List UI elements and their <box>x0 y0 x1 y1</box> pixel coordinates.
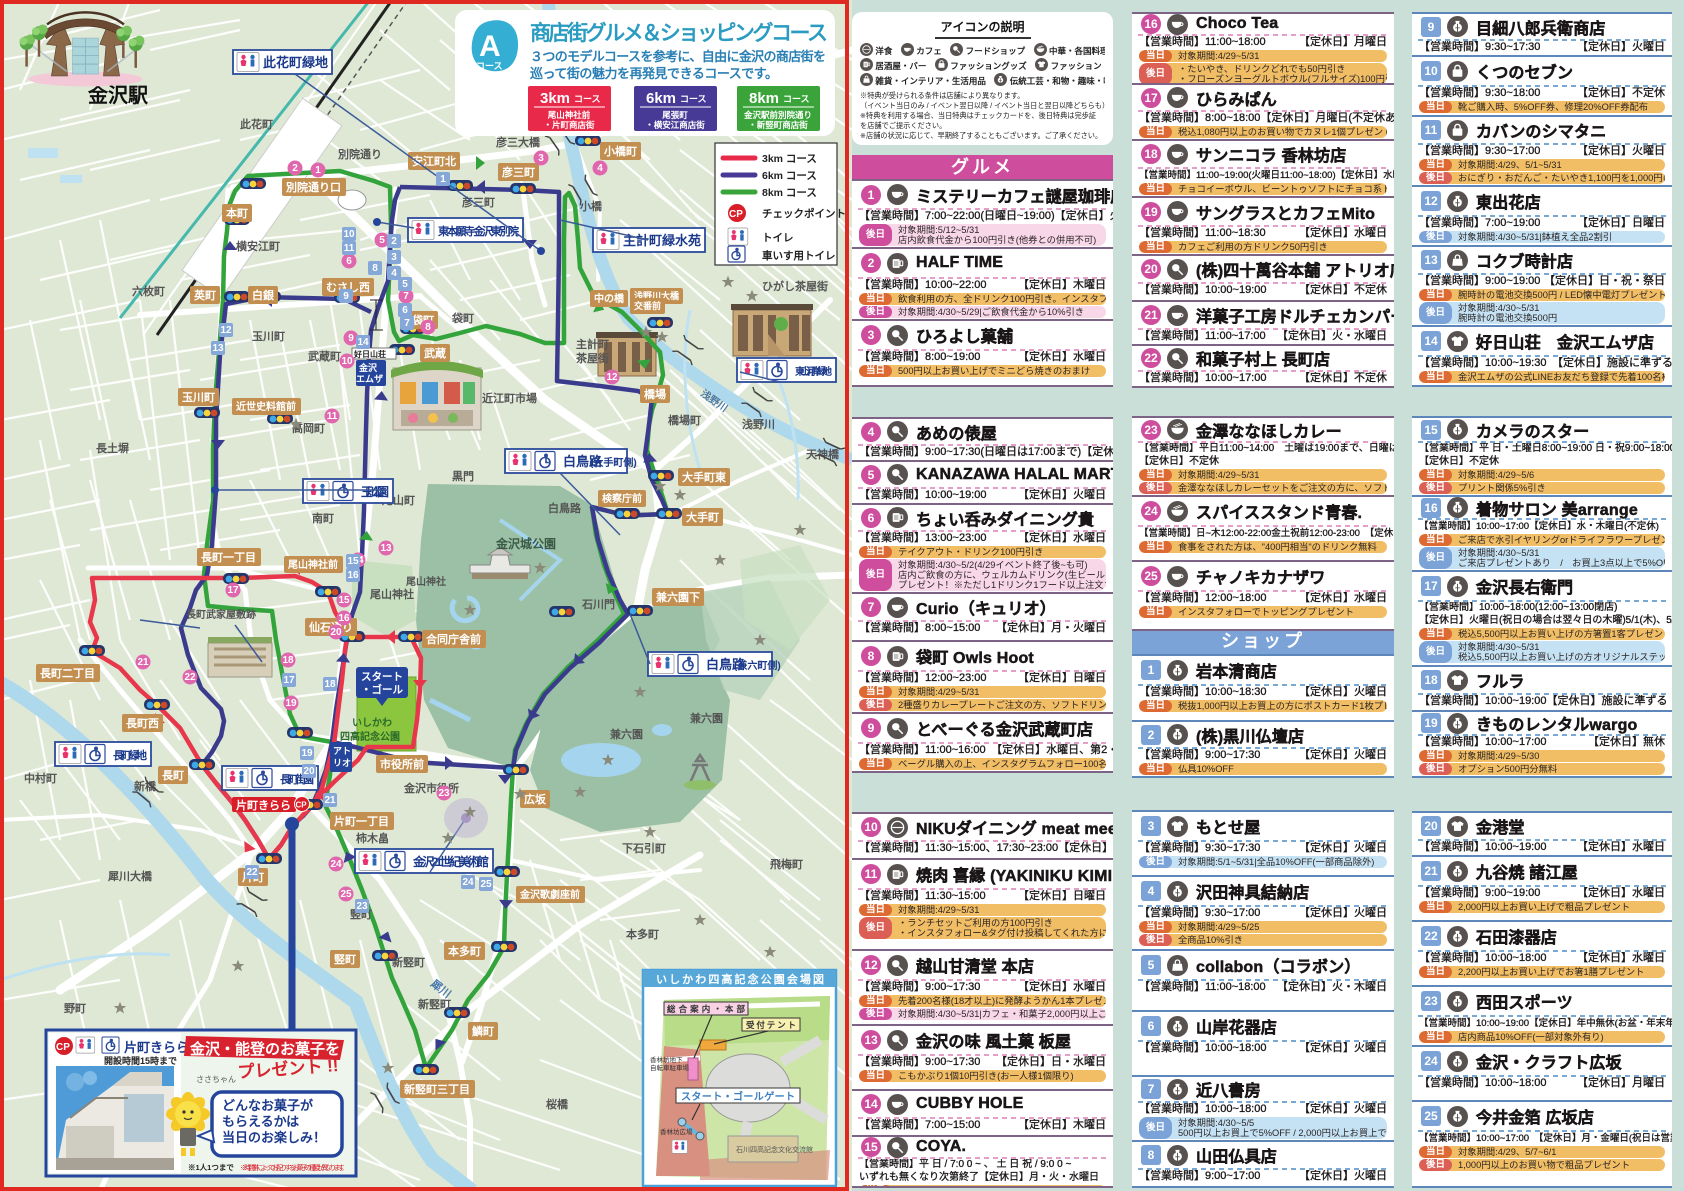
svg-text:本町: 本町 <box>226 206 248 220</box>
svg-text:英町: 英町 <box>193 288 216 302</box>
svg-text:25: 25 <box>340 889 352 900</box>
svg-text:8km: 8km <box>749 90 779 107</box>
svg-text:24: 24 <box>462 877 474 888</box>
svg-text:※1人1つまで: ※1人1つまで <box>188 1163 234 1172</box>
svg-text:・新竪町商店街: ・新竪町商店街 <box>748 120 808 130</box>
svg-text:長町: 長町 <box>162 769 184 782</box>
svg-text:(兼六町側): (兼六町側) <box>734 659 781 672</box>
svg-text:新竪町: 新竪町 <box>392 955 425 969</box>
svg-text:5: 5 <box>402 279 408 290</box>
svg-text:巡って街の魅力を再発見できるコースです。: 巡って街の魅力を再発見できるコースです。 <box>530 66 778 81</box>
svg-text:12: 12 <box>606 372 618 383</box>
svg-text:石川四高記念文化交流館: 石川四高記念文化交流館 <box>736 1145 813 1154</box>
svg-text:中村町: 中村町 <box>24 771 57 785</box>
svg-text:竪町: 竪町 <box>334 953 356 966</box>
svg-text:検察庁前: 検察庁前 <box>602 492 642 505</box>
svg-text:新橋: 新橋 <box>134 779 157 793</box>
svg-text:此花町: 此花町 <box>240 117 273 131</box>
svg-text:(大手町側): (大手町側) <box>590 456 637 469</box>
svg-text:コース: コース <box>680 94 707 104</box>
svg-text:金沢駅前別院通り: 金沢駅前別院通り <box>743 110 812 120</box>
svg-text:片町きらら: 片町きらら <box>124 1040 189 1055</box>
svg-text:横安江町: 横安江町 <box>236 239 280 253</box>
svg-text:長土塀: 長土塀 <box>96 441 129 455</box>
svg-text:白銀: 白銀 <box>252 288 274 302</box>
svg-text:14: 14 <box>357 337 369 348</box>
svg-text:16: 16 <box>338 613 350 624</box>
svg-text:23: 23 <box>356 901 368 912</box>
svg-text:CP: CP <box>56 1042 70 1053</box>
svg-text:長町緑地: 長町緑地 <box>113 748 147 762</box>
svg-text:3: 3 <box>391 252 397 263</box>
svg-text:３つのモデルコースを参考に、自由に金沢の商店街を: ３つのモデルコースを参考に、自由に金沢の商店街を <box>530 49 826 64</box>
svg-text:2: 2 <box>292 163 298 174</box>
svg-text:犀川大橋: 犀川大橋 <box>107 869 153 883</box>
svg-text:片町一丁目: 片町一丁目 <box>334 814 389 828</box>
svg-text:4: 4 <box>391 268 397 279</box>
svg-text:尾山神社前: 尾山神社前 <box>547 110 591 120</box>
svg-text:※時間帯によってお配りするお菓子の種類が異なります。: ※時間帯によってお配りするお菓子の種類が異なります。 <box>240 1163 348 1172</box>
svg-text:4: 4 <box>597 163 603 174</box>
svg-text:袋町: 袋町 <box>451 311 474 325</box>
svg-text:鱗町: 鱗町 <box>471 1024 494 1038</box>
svg-text:橋場: 橋場 <box>644 387 666 401</box>
svg-text:8: 8 <box>425 322 431 333</box>
svg-text:別院通り口: 別院通り口 <box>285 180 341 194</box>
svg-text:主計町: 主計町 <box>576 337 609 351</box>
svg-text:・ゴール: ・ゴール <box>361 683 403 696</box>
svg-text:10: 10 <box>343 229 355 240</box>
svg-text:10: 10 <box>341 356 353 367</box>
svg-text:18: 18 <box>282 655 294 666</box>
svg-text:19: 19 <box>285 698 297 709</box>
svg-text:近江町市場: 近江町市場 <box>482 391 537 405</box>
svg-text:長町武家屋敷跡: 長町武家屋敷跡 <box>186 608 256 621</box>
svg-text:ささちゃん: ささちゃん <box>196 1075 236 1084</box>
svg-text:大手町: 大手町 <box>686 510 719 524</box>
svg-text:トイレ: トイレ <box>762 232 794 244</box>
svg-text:5: 5 <box>379 235 385 246</box>
svg-text:3: 3 <box>538 153 544 164</box>
svg-text:金沢・能登のお菓子を: 金沢・能登のお菓子を <box>189 1040 340 1058</box>
svg-text:交番前: 交番前 <box>634 300 661 311</box>
svg-text:2: 2 <box>391 236 397 247</box>
svg-text:野町: 野町 <box>64 1002 86 1015</box>
svg-text:受付テント: 受付テント <box>746 1020 796 1030</box>
svg-text:尾山神社: 尾山神社 <box>406 575 446 588</box>
svg-text:・片町商店街: ・片町商店街 <box>543 120 595 130</box>
svg-text:桜橋: 桜橋 <box>546 1097 569 1111</box>
svg-text:6km コース: 6km コース <box>762 170 817 182</box>
svg-text:21: 21 <box>324 795 336 806</box>
svg-text:別院通り: 別院通り <box>337 147 382 161</box>
svg-text:南町: 南町 <box>312 511 334 525</box>
svg-text:玉川公園: 玉川公園 <box>361 485 389 499</box>
svg-text:柿木畠: 柿木畠 <box>356 831 389 845</box>
svg-text:武蔵: 武蔵 <box>424 346 446 360</box>
svg-text:自転車駐車場: 自転車駐車場 <box>650 1063 690 1072</box>
svg-text:玉川町: 玉川町 <box>182 391 215 404</box>
svg-text:コース: コース <box>476 61 503 71</box>
svg-text:15: 15 <box>338 595 350 606</box>
svg-text:小橋町: 小橋町 <box>603 144 637 158</box>
svg-text:中の橋: 中の橋 <box>594 292 625 305</box>
svg-text:16: 16 <box>347 570 359 581</box>
svg-text:8: 8 <box>372 263 378 274</box>
svg-text:彦三大橋: 彦三大橋 <box>496 135 541 149</box>
svg-text:A: A <box>479 30 501 63</box>
svg-text:24: 24 <box>330 859 342 870</box>
svg-text:13: 13 <box>380 543 392 554</box>
svg-text:6: 6 <box>346 256 352 267</box>
svg-text:1: 1 <box>440 174 446 185</box>
svg-text:合同庁舎前: 合同庁舎前 <box>426 632 481 646</box>
svg-text:天神橋: 天神橋 <box>806 447 840 461</box>
svg-text:四高記念公園: 四高記念公園 <box>340 730 400 743</box>
svg-text:ひがし茶屋街: ひがし茶屋街 <box>762 279 828 293</box>
svg-text:17: 17 <box>227 585 239 596</box>
svg-text:小橋: 小橋 <box>579 199 603 213</box>
svg-text:尾山神社: 尾山神社 <box>369 587 414 601</box>
svg-text:3km: 3km <box>540 90 570 107</box>
svg-text:金沢21世紀美術館: 金沢21世紀美術館 <box>412 854 489 869</box>
svg-text:長町西: 長町西 <box>126 717 159 730</box>
svg-text:石川門: 石川門 <box>581 598 615 611</box>
svg-text:6km: 6km <box>646 90 676 107</box>
svg-text:22: 22 <box>184 672 196 683</box>
svg-text:市役所前: 市役所前 <box>380 757 424 771</box>
svg-text:飛梅町: 飛梅町 <box>769 857 803 871</box>
svg-text:茶屋街: 茶屋街 <box>575 351 609 365</box>
svg-text:23: 23 <box>438 788 450 799</box>
svg-text:香林坊広場: 香林坊広場 <box>660 1127 693 1136</box>
svg-text:黒門: 黒門 <box>452 470 474 483</box>
svg-text:8km コース: 8km コース <box>762 187 817 199</box>
svg-text:もらえるかは: もらえるかは <box>222 1114 299 1129</box>
svg-text:21: 21 <box>137 657 149 668</box>
svg-text:車いす用トイレ: 車いす用トイレ <box>762 249 836 262</box>
svg-text:スタート・ゴールゲート: スタート・ゴールゲート <box>681 1090 795 1103</box>
svg-text:・横安江商店街: ・横安江商店街 <box>645 120 705 130</box>
svg-text:7: 7 <box>403 291 409 302</box>
svg-text:9: 9 <box>343 291 349 302</box>
svg-text:18: 18 <box>324 679 336 690</box>
svg-text:武蔵町: 武蔵町 <box>308 349 341 363</box>
svg-text:11: 11 <box>327 411 338 422</box>
svg-text:CP: CP <box>729 209 743 220</box>
svg-text:チェックポイント: チェックポイント <box>762 207 846 220</box>
svg-text:本多町: 本多町 <box>626 927 659 941</box>
svg-text:新竪町三丁目: 新竪町三丁目 <box>404 1082 470 1096</box>
svg-text:浅野川: 浅野川 <box>742 417 775 431</box>
svg-text:香林坊地下: 香林坊地下 <box>650 1055 683 1064</box>
svg-text:6: 6 <box>402 305 408 316</box>
svg-text:コース: コース <box>574 94 601 104</box>
svg-text:大手町東: 大手町東 <box>682 470 727 484</box>
svg-text:13: 13 <box>212 343 224 354</box>
svg-text:7: 7 <box>404 318 410 329</box>
svg-text:玉川町: 玉川町 <box>252 330 285 343</box>
svg-text:兼六園: 兼六園 <box>610 727 643 741</box>
svg-text:安江町北: 安江町北 <box>412 154 456 168</box>
svg-text:近世史料館前: 近世史料館前 <box>236 400 296 413</box>
svg-text:片町きらら: 片町きらら <box>236 798 291 812</box>
svg-text:兼六園下: 兼六園下 <box>656 590 700 604</box>
svg-text:いしかわ: いしかわ <box>352 717 392 729</box>
svg-text:20: 20 <box>303 766 315 777</box>
svg-text:17: 17 <box>283 675 295 686</box>
svg-text:22: 22 <box>246 867 258 878</box>
svg-text:尾山神社前: 尾山神社前 <box>288 558 338 571</box>
svg-text:六枚町: 六枚町 <box>132 284 165 298</box>
svg-text:白鳥路: 白鳥路 <box>548 501 582 515</box>
svg-text:当日のお楽しみ！: 当日のお楽しみ！ <box>222 1130 326 1145</box>
svg-text:アト: アト <box>333 746 351 756</box>
svg-text:下石引町: 下石引町 <box>622 841 666 855</box>
svg-text:此花町緑地: 此花町緑地 <box>263 55 328 70</box>
svg-text:スタート: スタート <box>361 671 403 683</box>
svg-text:尾張町: 尾張町 <box>661 110 688 120</box>
svg-text:12: 12 <box>220 325 232 336</box>
svg-text:東山河岸緑地: 東山河岸緑地 <box>795 365 832 378</box>
svg-text:彦三町: 彦三町 <box>502 165 535 179</box>
svg-text:9: 9 <box>348 333 354 344</box>
svg-text:金沢城公園: 金沢城公園 <box>495 536 556 551</box>
svg-text:3km コース: 3km コース <box>762 153 817 165</box>
svg-text:11: 11 <box>344 243 355 254</box>
svg-text:15: 15 <box>347 556 359 567</box>
svg-text:リオ: リオ <box>333 758 351 768</box>
svg-text:広坂: 広坂 <box>524 792 547 806</box>
svg-text:25: 25 <box>480 879 492 890</box>
svg-text:エムザ: エムザ <box>356 374 383 384</box>
svg-text:1: 1 <box>315 165 321 176</box>
svg-text:どんなお菓子が: どんなお菓子が <box>222 1098 313 1113</box>
svg-text:金沢駅: 金沢駅 <box>87 83 148 107</box>
svg-text:商店街グルメ＆ショッピングコース: 商店街グルメ＆ショッピングコース <box>530 21 828 45</box>
svg-text:CP: CP <box>296 801 308 810</box>
svg-text:金沢歌劇座前: 金沢歌劇座前 <box>519 888 580 901</box>
svg-text:長町一丁目: 長町一丁目 <box>201 551 256 564</box>
svg-text:好日山荘: 好日山荘 <box>353 349 386 359</box>
svg-text:19: 19 <box>301 748 313 759</box>
svg-text:金沢: 金沢 <box>358 362 378 373</box>
svg-text:開設時間15時まで: 開設時間15時まで <box>104 1055 177 1066</box>
svg-text:コース: コース <box>783 94 810 104</box>
svg-text:主計町緑水苑: 主計町緑水苑 <box>623 233 701 248</box>
svg-text:本多町: 本多町 <box>448 944 481 958</box>
svg-text:20: 20 <box>330 627 342 638</box>
svg-text:長町二丁目: 長町二丁目 <box>40 667 95 680</box>
svg-text:兼六園: 兼六園 <box>690 711 723 725</box>
svg-text:橋場町: 橋場町 <box>668 413 701 427</box>
